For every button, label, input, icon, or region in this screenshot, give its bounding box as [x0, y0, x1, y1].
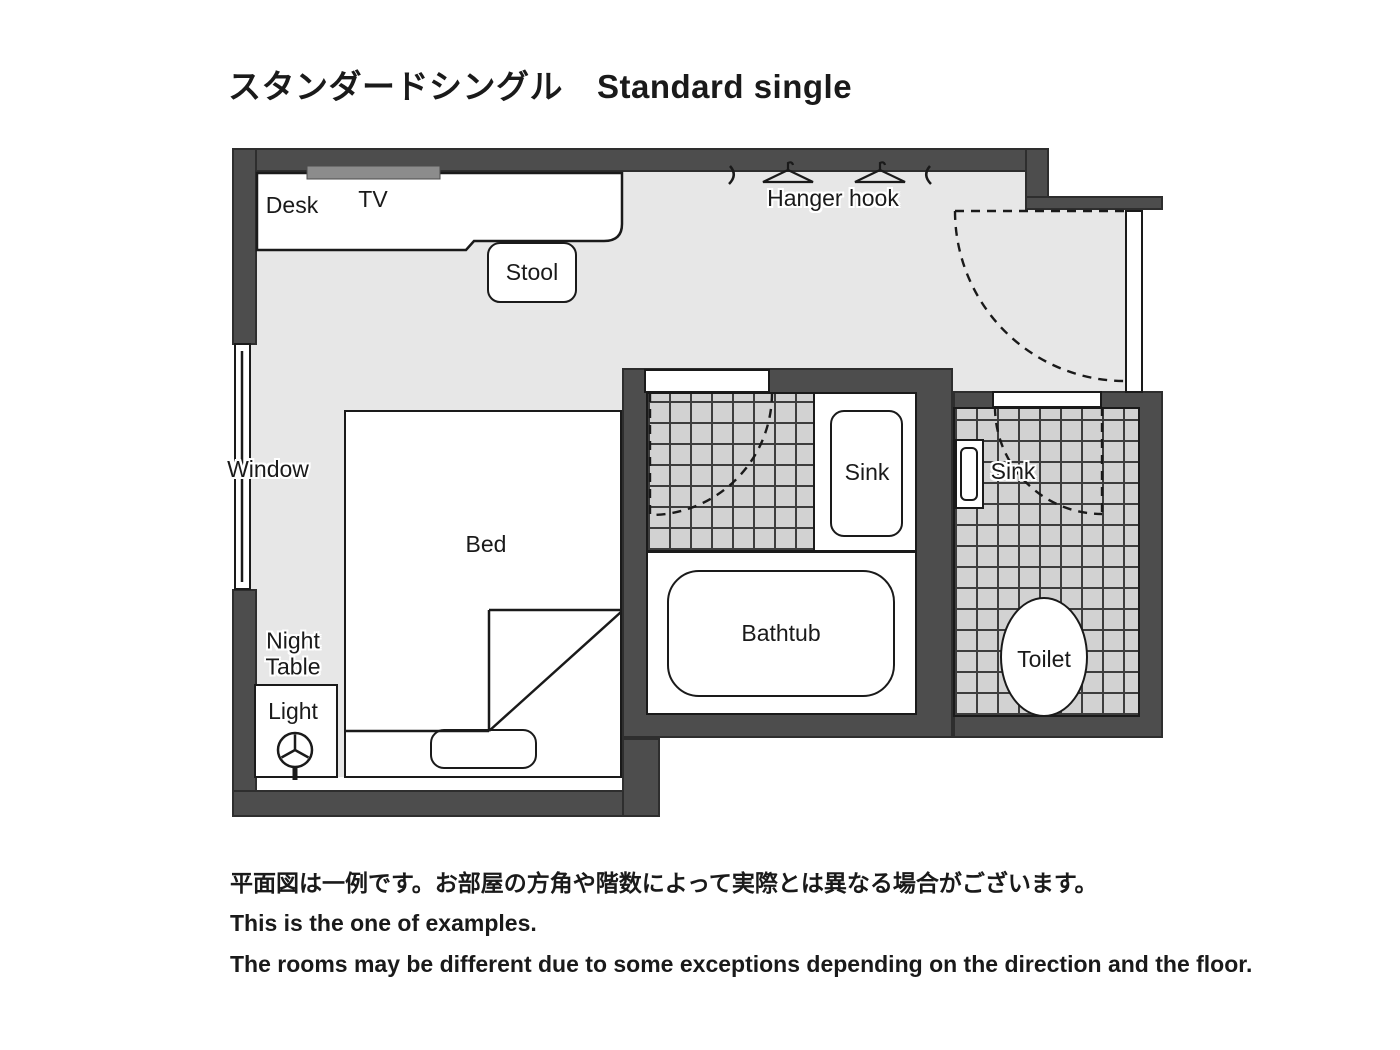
label-sink-bathroom: Sink — [845, 459, 890, 485]
label-stool: Stool — [506, 259, 558, 285]
label-toilet: Toilet — [1017, 646, 1071, 672]
entry-door-leaf — [1125, 210, 1143, 393]
wall-bottom-step — [622, 738, 660, 817]
wall-top — [232, 148, 1049, 172]
label-light: Light — [268, 698, 318, 724]
bathroom-divider-line — [646, 550, 917, 553]
bathroom-door-opening — [644, 369, 770, 393]
bathroom-tile-floor — [646, 392, 815, 552]
label-tv: TV — [358, 186, 387, 212]
bed — [344, 410, 622, 778]
label-sink-toilet: Sink — [991, 458, 1036, 484]
bed-pillow — [430, 729, 537, 769]
footer-note-en2: The rooms may be different due to some e… — [230, 951, 1252, 978]
wall-entry-top — [1025, 196, 1163, 210]
wall-bottom — [232, 790, 660, 817]
toilet-door-opening — [992, 391, 1102, 408]
label-bed: Bed — [466, 531, 507, 557]
footer-note-jp: 平面図は一例です。お部屋の方角や階数によって実際とは異なる場合がございます。 — [230, 864, 1098, 898]
label-desk: Desk — [266, 192, 318, 218]
floor-plan-page: スタンダードシングルStandard single — [0, 0, 1400, 1050]
page-title-en: Standard single — [597, 68, 852, 105]
page-title: スタンダードシングルStandard single — [228, 60, 852, 108]
bottom-wall-inner-strip — [257, 777, 622, 790]
label-window: Window — [227, 456, 309, 482]
label-night-table: Night Table — [266, 628, 321, 681]
toilet-sink-basin — [960, 447, 978, 501]
wall-left-upper — [232, 148, 257, 345]
page-title-jp: スタンダードシングル — [228, 68, 563, 105]
footer-note-en1: This is the one of examples. — [230, 910, 537, 937]
label-hanger-hook: Hanger hook — [767, 185, 899, 211]
label-bathtub: Bathtub — [741, 620, 820, 646]
